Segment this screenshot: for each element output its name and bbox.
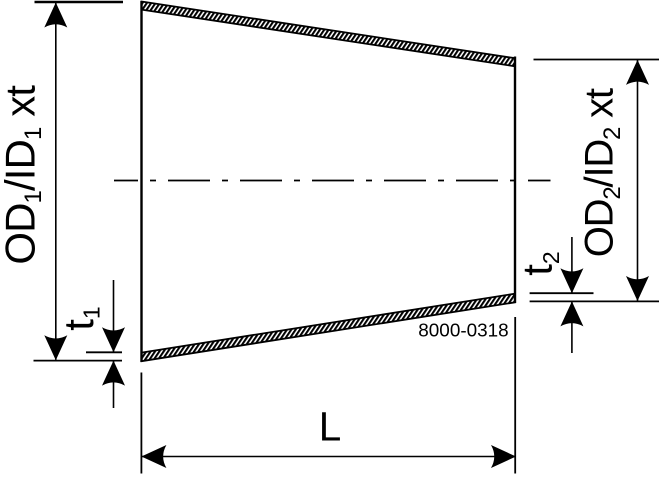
svg-text:8000-0318: 8000-0318 [418,321,508,342]
svg-text:L: L [319,404,342,450]
svg-text:OD1/ID1 xt: OD1/ID1 xt [0,85,47,265]
svg-text:t1: t1 [55,306,105,330]
svg-text:OD2/ID2 xt: OD2/ID2 xt [578,88,627,257]
svg-text:t2: t2 [514,251,564,275]
